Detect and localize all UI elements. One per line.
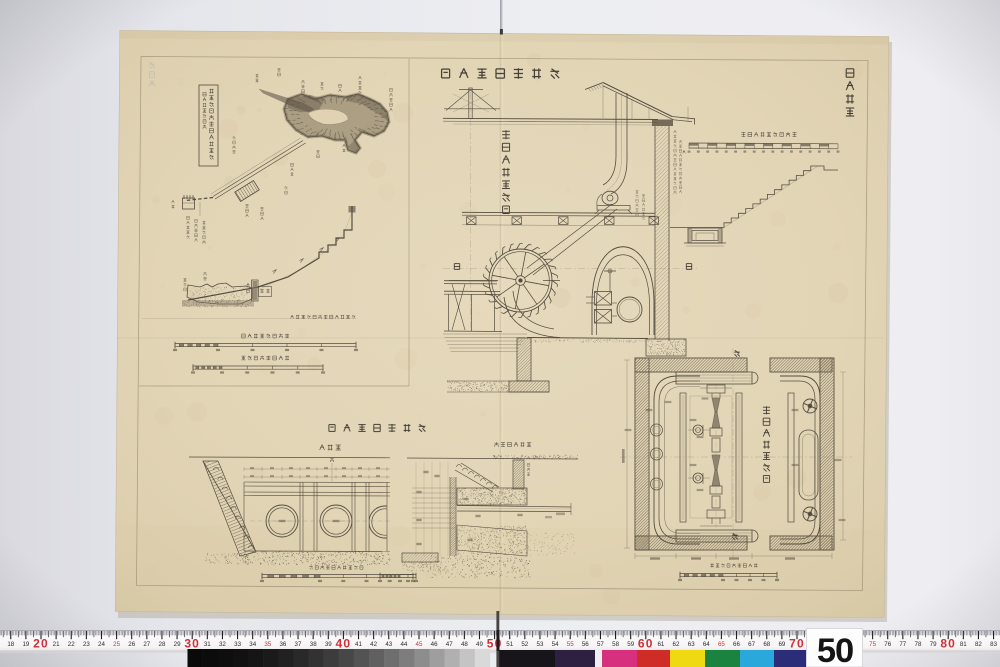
svg-text:22: 22 bbox=[68, 641, 75, 648]
svg-text:35: 35 bbox=[264, 641, 271, 648]
svg-text:63: 63 bbox=[688, 641, 695, 648]
svg-text:75: 75 bbox=[869, 641, 876, 648]
svg-text:82: 82 bbox=[975, 641, 982, 648]
svg-text:65: 65 bbox=[718, 641, 725, 648]
svg-text:24: 24 bbox=[98, 641, 105, 648]
svg-text:45: 45 bbox=[416, 641, 423, 648]
svg-text:54: 54 bbox=[552, 641, 559, 648]
svg-text:19: 19 bbox=[22, 641, 29, 648]
svg-text:29: 29 bbox=[174, 641, 181, 648]
svg-text:67: 67 bbox=[748, 641, 755, 648]
svg-text:70: 70 bbox=[789, 637, 805, 651]
svg-text:31: 31 bbox=[204, 641, 211, 648]
svg-text:30: 30 bbox=[184, 637, 200, 651]
svg-text:21: 21 bbox=[53, 641, 60, 648]
svg-text:58: 58 bbox=[612, 641, 619, 648]
svg-text:48: 48 bbox=[461, 641, 468, 648]
svg-text:47: 47 bbox=[446, 641, 453, 648]
svg-text:43: 43 bbox=[385, 641, 392, 648]
svg-text:59: 59 bbox=[627, 641, 634, 648]
svg-text:18: 18 bbox=[7, 641, 14, 648]
svg-text:83: 83 bbox=[990, 641, 997, 648]
svg-text:33: 33 bbox=[234, 641, 241, 648]
svg-text:38: 38 bbox=[310, 641, 317, 648]
svg-text:53: 53 bbox=[537, 641, 544, 648]
svg-text:34: 34 bbox=[249, 641, 256, 648]
svg-text:50: 50 bbox=[817, 632, 853, 667]
svg-text:66: 66 bbox=[733, 641, 740, 648]
svg-text:78: 78 bbox=[915, 641, 922, 648]
svg-text:55: 55 bbox=[567, 641, 574, 648]
svg-text:28: 28 bbox=[159, 641, 166, 648]
svg-text:69: 69 bbox=[778, 641, 785, 648]
svg-text:50: 50 bbox=[487, 637, 503, 651]
svg-text:37: 37 bbox=[295, 641, 302, 648]
svg-text:27: 27 bbox=[143, 641, 150, 648]
svg-text:39: 39 bbox=[325, 641, 332, 648]
svg-text:81: 81 bbox=[960, 641, 967, 648]
svg-text:80: 80 bbox=[940, 637, 956, 651]
svg-text:79: 79 bbox=[930, 641, 937, 648]
svg-text:32: 32 bbox=[219, 641, 226, 648]
svg-text:62: 62 bbox=[673, 641, 680, 648]
svg-text:46: 46 bbox=[431, 641, 438, 648]
svg-text:41: 41 bbox=[355, 641, 362, 648]
svg-text:51: 51 bbox=[506, 641, 513, 648]
svg-text:68: 68 bbox=[763, 641, 770, 648]
svg-text:23: 23 bbox=[83, 641, 90, 648]
svg-text:44: 44 bbox=[400, 641, 407, 648]
svg-text:49: 49 bbox=[476, 641, 483, 648]
svg-text:25: 25 bbox=[113, 641, 120, 648]
svg-text:64: 64 bbox=[703, 641, 710, 648]
svg-text:60: 60 bbox=[638, 637, 654, 651]
svg-text:42: 42 bbox=[370, 641, 377, 648]
svg-text:26: 26 bbox=[128, 641, 135, 648]
svg-text:57: 57 bbox=[597, 641, 604, 648]
svg-text:56: 56 bbox=[582, 641, 589, 648]
svg-text:61: 61 bbox=[657, 641, 664, 648]
svg-text:20: 20 bbox=[33, 637, 49, 651]
svg-text:77: 77 bbox=[899, 641, 906, 648]
svg-text:76: 76 bbox=[884, 641, 891, 648]
svg-text:40: 40 bbox=[336, 637, 352, 651]
svg-text:52: 52 bbox=[521, 641, 528, 648]
svg-text:36: 36 bbox=[279, 641, 286, 648]
